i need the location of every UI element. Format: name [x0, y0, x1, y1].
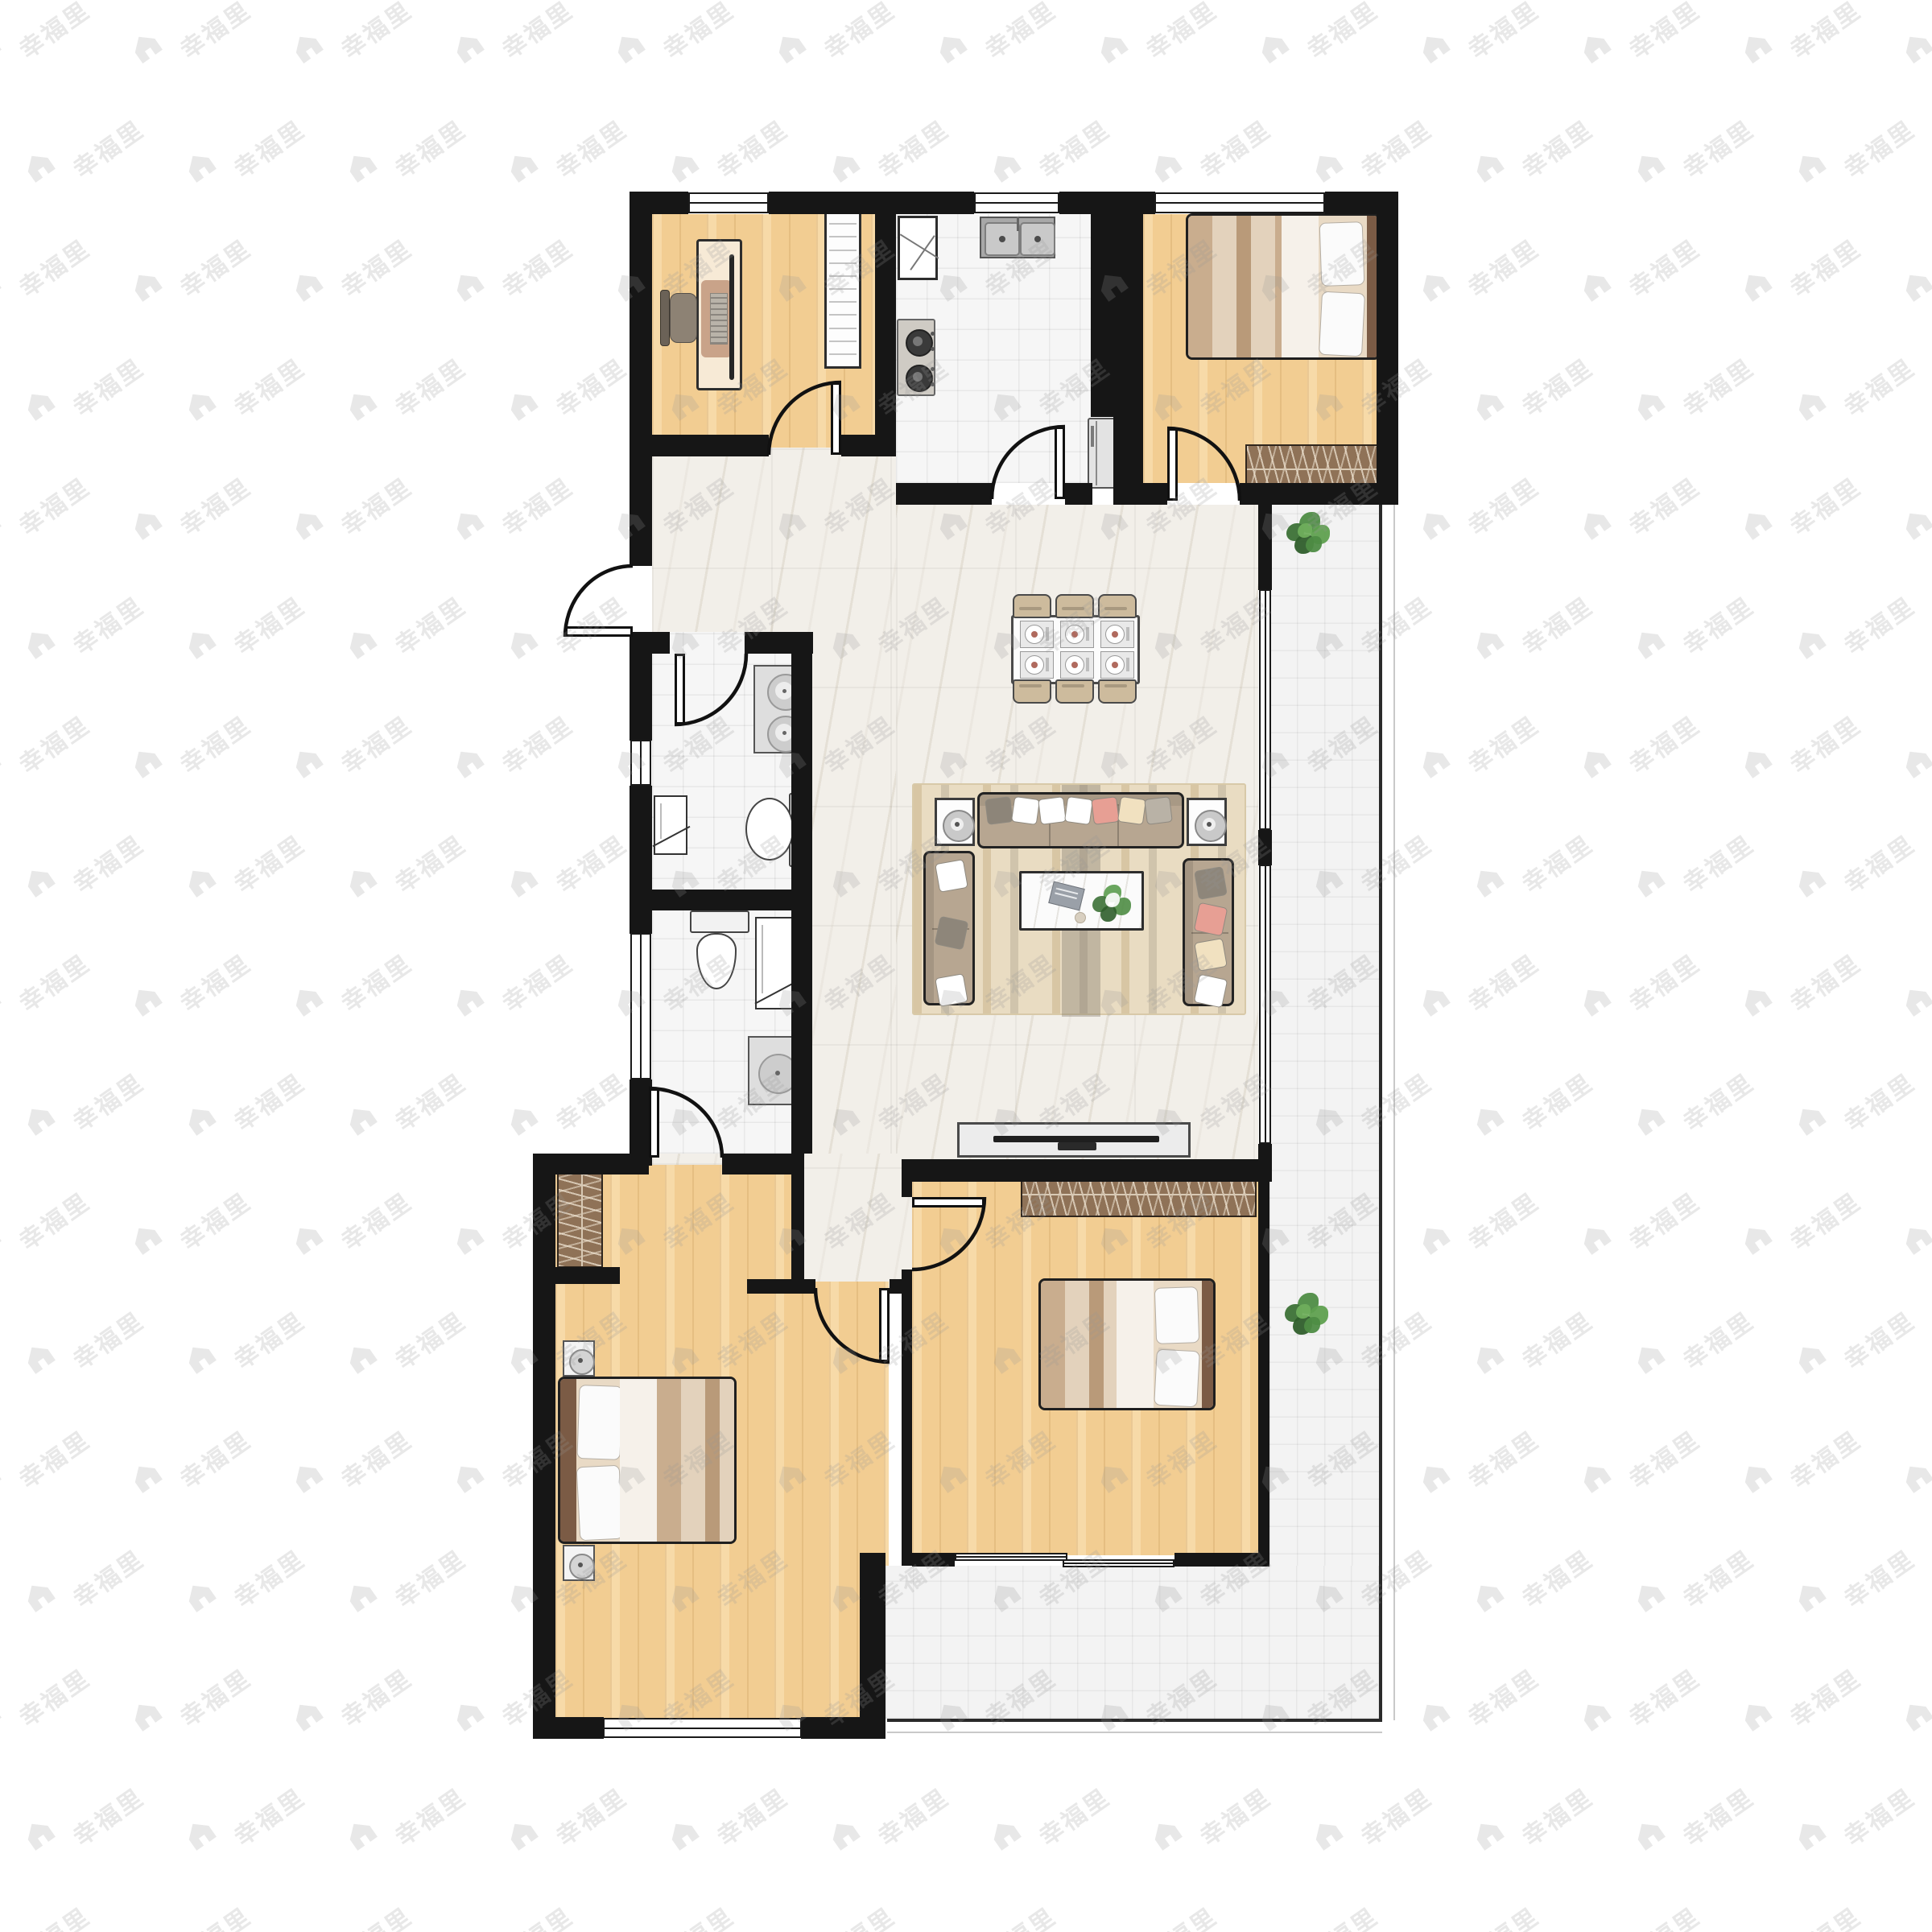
plate-center	[1031, 662, 1038, 668]
utensil-icon	[1046, 658, 1049, 671]
utensil-icon	[1126, 658, 1129, 671]
blanket	[1188, 216, 1282, 360]
wall-segment	[630, 786, 652, 934]
plate-icon	[1065, 655, 1084, 675]
hanger-rail	[1022, 1194, 1255, 1195]
wall-segment	[769, 192, 974, 214]
master-nightstand-bottom	[563, 1545, 595, 1581]
dining-chair	[1098, 594, 1137, 618]
chair-seat-line	[1019, 684, 1042, 687]
kitchen-corner-cabinet	[898, 216, 938, 280]
plate-center	[1112, 662, 1118, 668]
wall-segment	[747, 1279, 815, 1294]
seat-pillow	[935, 916, 969, 951]
shelf-line	[829, 314, 857, 316]
study-chair	[660, 287, 697, 348]
shelf-line	[829, 353, 857, 355]
bathroom2-door-leaf	[650, 1090, 658, 1157]
utensil-icon	[1086, 658, 1089, 671]
bedroom3-door-leaf	[914, 1199, 984, 1207]
blanket	[657, 1379, 734, 1544]
headboard	[560, 1379, 576, 1544]
lamp-dot	[955, 822, 960, 827]
seat-pillow	[1194, 974, 1228, 1009]
dining-chair	[1098, 679, 1137, 704]
utensil-icon	[1046, 627, 1049, 641]
wall-segment	[1065, 483, 1092, 505]
wall-segment	[902, 1269, 912, 1566]
wall-segment	[1258, 1182, 1269, 1566]
coffee-table	[1019, 871, 1144, 931]
wall-segment	[912, 1553, 955, 1567]
drain-dot	[999, 236, 1005, 242]
glass-fold	[762, 925, 763, 993]
bathroom1-window	[630, 740, 651, 786]
plate-icon	[1105, 655, 1125, 675]
headboard	[1202, 1281, 1216, 1410]
chair-seat-line	[1104, 684, 1127, 687]
wall-segment	[630, 632, 670, 654]
dining-chair	[1055, 594, 1094, 618]
burner-ring	[913, 336, 923, 346]
dining-chair	[1055, 679, 1094, 704]
seat-pillow	[1194, 902, 1228, 936]
leaf-puff	[1306, 536, 1322, 552]
plate-center	[1071, 631, 1078, 638]
wall-segment	[860, 1553, 885, 1737]
wall-segment	[1258, 830, 1272, 865]
sheet-fold	[620, 1379, 657, 1544]
lamp-dot	[578, 1358, 583, 1363]
pillow	[1319, 221, 1365, 287]
entry-door	[565, 566, 633, 637]
toilet-bowl	[696, 933, 737, 989]
faucet-icon	[1017, 217, 1019, 231]
room-hall-niche	[803, 1154, 912, 1288]
place-setting	[1020, 651, 1054, 679]
wall-segment	[1113, 214, 1143, 505]
balcony-railing-right-outer	[1382, 505, 1395, 1720]
balcony-bottom	[885, 1566, 1379, 1719]
wall-segment	[1240, 483, 1398, 505]
entry-door-leaf	[567, 628, 632, 636]
kitchen-stove	[897, 319, 935, 396]
bedroom3-door	[912, 1197, 985, 1269]
bedroom3-balcony-slider	[955, 1553, 1067, 1561]
book-icon	[1048, 881, 1085, 911]
drain-dot	[775, 1071, 780, 1075]
wall-segment	[630, 890, 812, 910]
dining-chair	[1013, 679, 1051, 704]
bedroom3-balcony-slider	[1063, 1559, 1174, 1567]
sheet-fold	[1282, 216, 1319, 360]
saucer-dot	[1075, 912, 1086, 923]
keyboard-icon	[710, 293, 728, 345]
tv-console	[957, 1122, 1191, 1158]
pillow	[1154, 1286, 1199, 1344]
shelf-line	[829, 275, 857, 277]
pillow	[1154, 1349, 1200, 1408]
living-sofa	[977, 792, 1184, 848]
wall-segment	[722, 1154, 804, 1174]
lamp-dot	[578, 1563, 583, 1567]
knob-dot	[931, 367, 935, 371]
lamp-icon	[569, 1554, 595, 1579]
study-window	[688, 192, 769, 213]
wall-segment	[630, 435, 769, 456]
study-door	[769, 382, 841, 455]
seat-pillow	[1194, 938, 1228, 972]
flower-puff	[1100, 906, 1117, 922]
plate-icon	[1105, 625, 1125, 644]
glass-line	[653, 826, 691, 847]
bathroom1-door	[675, 654, 746, 724]
master-wardrobe	[557, 1168, 603, 1268]
kitchen-sink	[980, 217, 1055, 258]
wall-segment	[1091, 214, 1115, 417]
wall-segment	[630, 192, 652, 566]
shelf-line	[829, 341, 857, 342]
balcony-glass-lower	[1259, 865, 1271, 1144]
kitchen-door-leaf	[1056, 428, 1064, 498]
pillow	[1319, 291, 1365, 357]
wall-segment	[1258, 505, 1272, 590]
seat-pillow	[935, 973, 968, 1007]
master-bedroom-window	[603, 1718, 802, 1738]
shelf-line	[829, 301, 857, 303]
armchair-right	[1183, 858, 1234, 1006]
tv-screen	[993, 1136, 1159, 1142]
bedroom1-door-leaf	[1169, 430, 1177, 500]
master-nightstand-top	[563, 1340, 595, 1377]
wall-segment	[1113, 483, 1167, 505]
fridge-door-line	[1096, 421, 1097, 485]
side-table-left	[935, 798, 975, 846]
utensil-icon	[1126, 627, 1129, 641]
shelf-line	[829, 223, 857, 225]
monitor-icon	[729, 254, 734, 380]
kitchen-window	[974, 192, 1059, 213]
sheet-fold	[1117, 1281, 1154, 1410]
dining-set	[1009, 594, 1140, 700]
sofa-pillow	[985, 796, 1013, 825]
bathroom2-door	[649, 1088, 722, 1158]
kitchen-door	[992, 427, 1065, 499]
master-bedroom-door-leaf	[881, 1290, 889, 1361]
sofa-pillow	[1064, 796, 1093, 825]
balcony-railing-bottom-outer	[887, 1722, 1382, 1733]
blanket	[1041, 1281, 1117, 1410]
burner-icon	[906, 329, 933, 357]
balcony-glass-upper	[1259, 589, 1271, 830]
burner-icon	[906, 365, 933, 392]
wall-segment	[902, 1159, 912, 1197]
balcony-plant-lower	[1285, 1293, 1330, 1341]
toilet-tank	[690, 910, 749, 933]
drain-dot	[782, 689, 786, 693]
shelf-line	[829, 236, 857, 237]
bedroom1-door	[1167, 428, 1240, 501]
chair-seat-line	[1104, 607, 1127, 610]
shelf-line	[829, 288, 857, 290]
chair-seat-line	[1019, 607, 1042, 610]
wall-segment	[1059, 192, 1155, 214]
bathroom1-shower	[654, 795, 687, 855]
plate-center	[1071, 662, 1078, 668]
sofa-pillow	[1091, 796, 1120, 825]
plate-icon	[1025, 655, 1044, 675]
place-setting	[1020, 621, 1054, 648]
plate-icon	[1025, 625, 1044, 644]
wall-segment	[912, 1159, 1258, 1182]
place-setting	[1060, 651, 1094, 679]
bathroom2-window	[630, 933, 651, 1080]
seat-pillow	[935, 859, 968, 893]
drain-dot	[1034, 236, 1041, 242]
place-setting	[1100, 651, 1134, 679]
wall-segment	[533, 1717, 604, 1739]
hanger-rail	[1247, 469, 1377, 470]
place-setting	[1100, 621, 1134, 648]
shelf-line	[829, 250, 857, 251]
sink-basin	[985, 222, 1020, 256]
tv-stand	[1058, 1142, 1096, 1150]
floorplan-canvas: 幸福里幸福里幸福里幸福里幸福里幸福里幸福里幸福里幸福里幸福里幸福里幸福里幸福里幸…	[0, 0, 1932, 1932]
bedroom1-bed	[1186, 213, 1381, 360]
pillow	[576, 1385, 622, 1460]
dining-table	[1011, 615, 1140, 684]
sofa-pillow	[1038, 796, 1067, 825]
knob-dot	[931, 382, 935, 386]
wall-segment	[1377, 192, 1398, 505]
study-bookshelf	[824, 208, 861, 369]
place-setting	[1060, 621, 1094, 648]
study-desk	[696, 239, 742, 390]
lamp-dot	[1207, 822, 1212, 827]
sofa-pillow	[1011, 796, 1040, 825]
leaf-puff	[1304, 1317, 1320, 1333]
armchair-left	[923, 851, 975, 1005]
floorplan	[0, 0, 1932, 1932]
burner-ring	[913, 372, 923, 382]
hanger-rail	[581, 1170, 583, 1266]
toilet-bowl	[745, 798, 794, 861]
balcony-plant-upper	[1286, 512, 1330, 555]
chair-seat-line	[1062, 684, 1084, 687]
bathroom2-toilet	[687, 910, 751, 991]
plate-icon	[1065, 625, 1084, 644]
fridge-handle	[1091, 426, 1094, 447]
sofa-pillow	[1117, 796, 1146, 825]
utensil-icon	[1086, 627, 1089, 641]
bedroom3-bed	[1038, 1278, 1216, 1410]
study-door-leaf	[832, 384, 840, 454]
flowers-icon	[1092, 883, 1131, 922]
lamp-icon	[569, 1349, 595, 1375]
master-bed	[558, 1377, 737, 1544]
wall-segment	[896, 483, 992, 505]
lamp-icon	[1195, 810, 1227, 842]
balcony-right	[1269, 505, 1379, 1719]
bathroom1-door-leaf	[676, 655, 684, 724]
wall-segment	[1174, 1553, 1269, 1567]
sofa-pillow	[1144, 796, 1173, 825]
sink-basin	[1020, 222, 1055, 256]
shelf-line	[829, 262, 857, 264]
wall-segment	[533, 1154, 555, 1737]
wall-segment	[1258, 1144, 1272, 1182]
chair-back	[660, 290, 670, 346]
chair-seat	[670, 293, 697, 343]
seat-pillow	[1194, 866, 1228, 900]
knob-dot	[931, 332, 935, 336]
lamp-icon	[943, 810, 975, 842]
chair-seat-line	[1062, 607, 1084, 610]
plate-center	[1112, 631, 1118, 638]
bedroom1-window	[1154, 192, 1325, 213]
pillow	[576, 1465, 624, 1542]
wall-segment	[875, 214, 896, 456]
glass-fold	[660, 803, 662, 839]
shelf-line	[829, 328, 857, 329]
wall-segment	[555, 1267, 620, 1284]
plate-center	[1031, 631, 1038, 638]
drain-dot	[782, 731, 786, 735]
dining-chair	[1013, 594, 1051, 618]
side-table-right	[1187, 798, 1227, 846]
master-bedroom-door	[815, 1288, 890, 1362]
knob-dot	[931, 347, 935, 351]
